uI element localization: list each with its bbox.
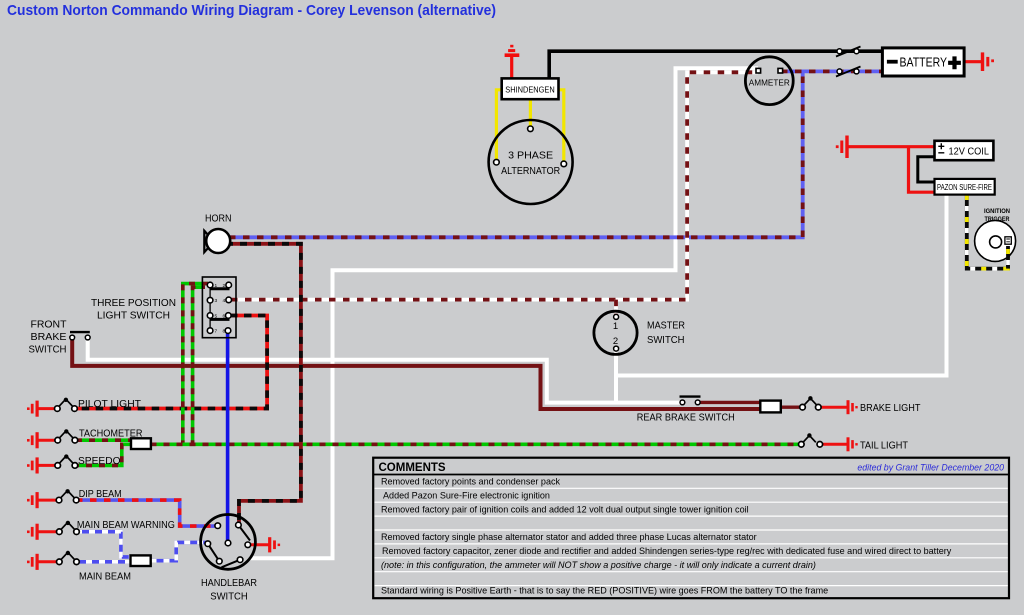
svg-text:BATTERY: BATTERY (900, 56, 948, 70)
svg-text:TRIGGER: TRIGGER (985, 216, 1010, 223)
svg-text:TAIL LIGHT: TAIL LIGHT (860, 439, 909, 451)
svg-text:IGNITION: IGNITION (984, 208, 1010, 215)
svg-text:3 PHASE: 3 PHASE (508, 150, 553, 162)
svg-text:AMMETER: AMMETER (749, 78, 790, 88)
svg-text:(note: in this configuration,: (note: in this configuration, the ammete… (381, 560, 816, 570)
svg-text:PILOT LIGHT: PILOT LIGHT (78, 398, 142, 410)
svg-text:Added Pazon Sure-Fire electron: Added Pazon Sure-Fire electronic ignitio… (383, 491, 550, 501)
svg-text:8: 8 (223, 328, 226, 334)
svg-text:Custom Norton Commando Wiring: Custom Norton Commando Wiring Diagram - … (7, 2, 496, 19)
svg-text:5: 5 (215, 313, 218, 319)
svg-text:COMMENTS: COMMENTS (379, 462, 446, 474)
svg-text:MASTER: MASTER (647, 320, 685, 332)
svg-text:BRAKE LIGHT: BRAKE LIGHT (860, 402, 921, 414)
svg-text:HORN: HORN (205, 213, 232, 225)
svg-text:SWITCH: SWITCH (647, 334, 685, 346)
svg-text:3: 3 (215, 298, 218, 304)
svg-text:HANDLEBAR: HANDLEBAR (201, 577, 257, 589)
svg-text:SHINDENGEN: SHINDENGEN (505, 85, 555, 95)
svg-text:Standard wiring is Positive Ea: Standard wiring is Positive Earth - that… (381, 586, 828, 596)
svg-text:Removed factory single phase a: Removed factory single phase alternator … (381, 532, 757, 542)
svg-text:12V COIL: 12V COIL (949, 146, 990, 158)
svg-text:Removed factory points and con: Removed factory points and condenser pac… (381, 477, 561, 487)
svg-text:PAZON SURE-FIRE: PAZON SURE-FIRE (937, 183, 992, 192)
svg-text:FRONT: FRONT (31, 319, 68, 331)
svg-text:LIGHT SWITCH: LIGHT SWITCH (97, 310, 170, 322)
svg-text:SPEEDO: SPEEDO (78, 455, 121, 467)
svg-text:DIP BEAM: DIP BEAM (79, 488, 122, 500)
svg-text:Removed factory capacitor, zen: Removed factory capacitor, zener diode a… (382, 546, 952, 556)
svg-text:REAR BRAKE SWITCH: REAR BRAKE SWITCH (637, 412, 735, 424)
svg-text:SWITCH: SWITCH (29, 344, 67, 356)
svg-text:edited by Grant Tiller Decembe: edited by Grant Tiller December 2020 (857, 463, 1004, 473)
svg-text:1: 1 (613, 321, 618, 332)
svg-text:Removed factory pair of igniti: Removed factory pair of ignition coils a… (381, 504, 749, 514)
svg-text:MAIN BEAM: MAIN BEAM (79, 571, 131, 583)
svg-text:TACHOMETER: TACHOMETER (79, 428, 143, 440)
svg-text:6: 6 (223, 313, 226, 319)
svg-text:1: 1 (215, 283, 218, 289)
svg-text:THREE POSITION: THREE POSITION (91, 297, 176, 309)
svg-text:7: 7 (215, 328, 218, 334)
svg-text:ALTERNATOR: ALTERNATOR (501, 165, 560, 177)
svg-text:2: 2 (223, 283, 226, 289)
svg-text:2: 2 (613, 336, 618, 347)
svg-text:SWITCH: SWITCH (210, 591, 248, 603)
svg-text:MAIN BEAM WARNING: MAIN BEAM WARNING (77, 519, 175, 531)
svg-text:BRAKE: BRAKE (31, 331, 67, 343)
svg-text:4: 4 (223, 298, 226, 304)
